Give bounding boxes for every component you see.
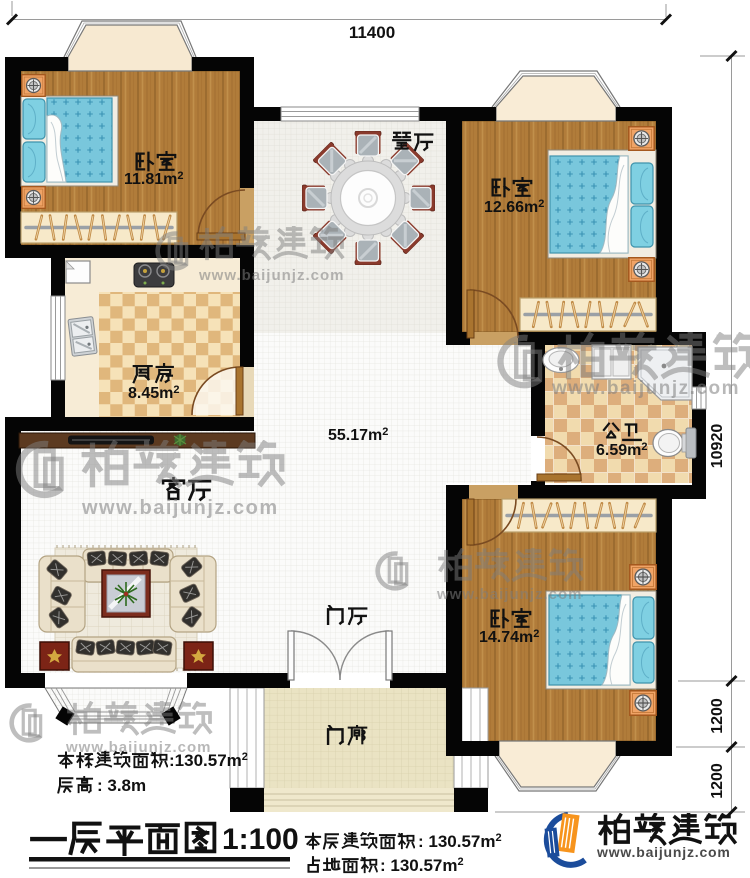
svg-text:8.45m2: 8.45m2 bbox=[128, 384, 180, 402]
svg-text:: 130.57m2: : 130.57m2 bbox=[418, 832, 502, 851]
svg-text:14.74m2: 14.74m2 bbox=[479, 628, 539, 646]
svg-text:www.baijunjz.com: www.baijunjz.com bbox=[436, 586, 582, 603]
svg-text:55.17m2: 55.17m2 bbox=[328, 426, 388, 444]
svg-text:1:100: 1:100 bbox=[222, 823, 299, 856]
svg-text:11400: 11400 bbox=[349, 23, 395, 42]
svg-text:: 130.57m2: : 130.57m2 bbox=[380, 856, 464, 875]
svg-text:12.66m2: 12.66m2 bbox=[484, 198, 544, 216]
svg-text:1200: 1200 bbox=[709, 763, 726, 799]
svg-text:1200: 1200 bbox=[709, 698, 726, 734]
svg-text:10920: 10920 bbox=[709, 424, 726, 469]
svg-text:www.baijunjz.com: www.baijunjz.com bbox=[551, 378, 740, 399]
svg-text:: 3.8m: : 3.8m bbox=[97, 776, 146, 795]
svg-text:www.baijunjz.com: www.baijunjz.com bbox=[596, 844, 731, 860]
svg-text:11.81m2: 11.81m2 bbox=[124, 170, 184, 188]
svg-text:6.59m2: 6.59m2 bbox=[596, 441, 648, 459]
svg-text:www.baijunjz.com: www.baijunjz.com bbox=[198, 267, 344, 284]
svg-text::130.57m2: :130.57m2 bbox=[169, 751, 248, 770]
svg-text:www.baijunjz.com: www.baijunjz.com bbox=[81, 497, 279, 519]
